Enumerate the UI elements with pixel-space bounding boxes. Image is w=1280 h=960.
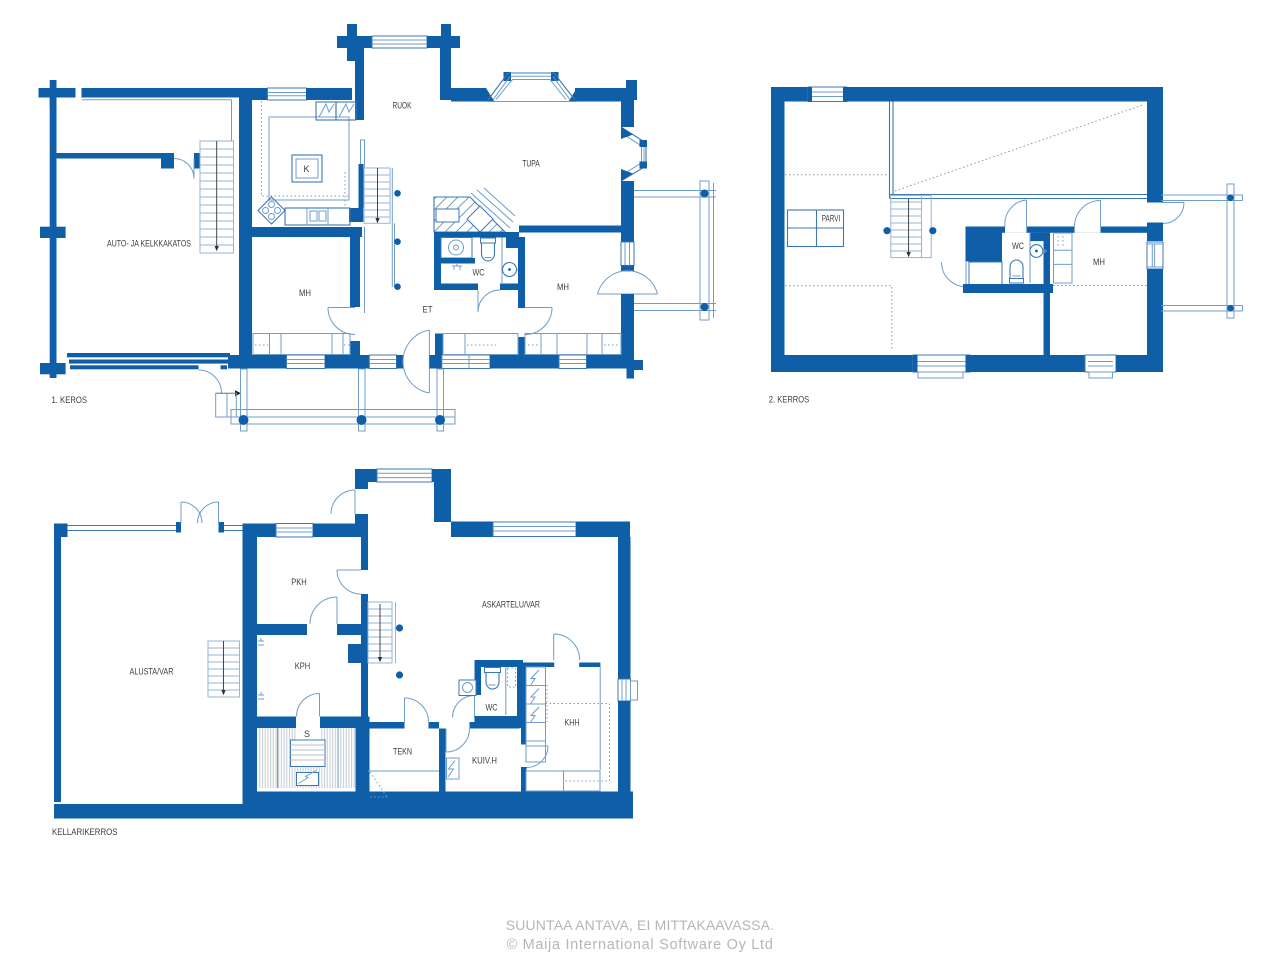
svg-text:TEKN: TEKN [393,747,412,757]
svg-text:KPH: KPH [295,661,311,671]
svg-text:© Maija International Software: © Maija International Software Oy Ltd [506,937,773,953]
svg-text:TUPA: TUPA [522,158,540,168]
svg-text:ASKARTELU/VAR: ASKARTELU/VAR [482,600,540,610]
svg-text:KHH: KHH [565,718,580,728]
svg-text:1. KEROS: 1. KEROS [52,395,88,406]
svg-text:K: K [304,164,310,174]
svg-text:RUOK: RUOK [393,101,412,111]
svg-text:PARVI: PARVI [822,214,841,224]
svg-text:AUTO- JA KELKKAKATOS: AUTO- JA KELKKAKATOS [107,239,191,249]
svg-text:WC: WC [486,703,498,713]
svg-text:ALUSTA/VAR: ALUSTA/VAR [130,667,174,677]
svg-text:KELLARIKERROS: KELLARIKERROS [52,827,118,838]
svg-text:S: S [304,729,310,739]
svg-text:WC: WC [473,268,485,278]
svg-text:SUUNTAA ANTAVA, EI MITTAKAAVAS: SUUNTAA ANTAVA, EI MITTAKAAVASSA. [506,917,774,933]
svg-text:ET: ET [423,305,433,315]
svg-text:MH: MH [1093,257,1105,267]
svg-text:KUIV.H: KUIV.H [472,756,497,766]
svg-text:MH: MH [299,288,311,298]
svg-text:2. KERROS: 2. KERROS [769,395,810,406]
svg-text:MH: MH [557,282,569,292]
svg-text:PKH: PKH [291,577,307,587]
svg-text:WC: WC [1012,241,1024,251]
